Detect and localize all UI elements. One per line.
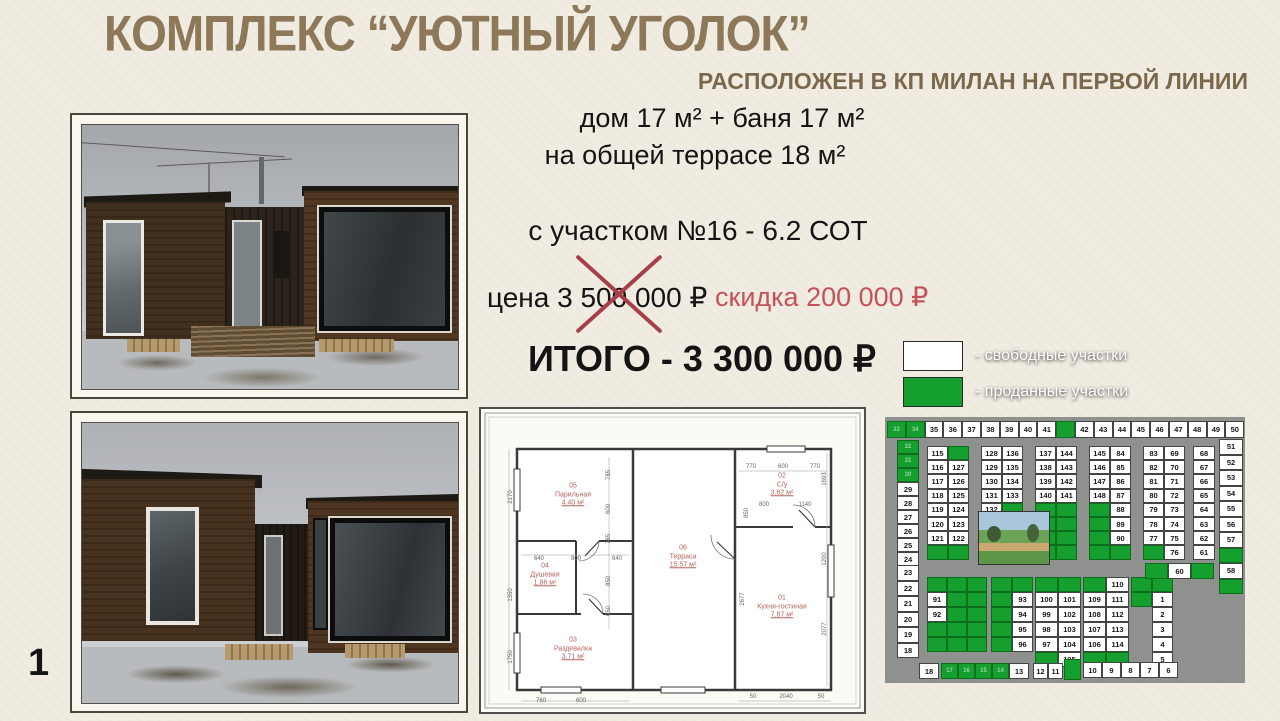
plot-cell: 8 xyxy=(1121,662,1140,678)
dimension-label: 1200 xyxy=(822,552,828,565)
plot-cell: 1 xyxy=(1152,592,1173,607)
plot-cell: 54 xyxy=(1219,486,1243,502)
left-cabin-window xyxy=(146,507,199,625)
plot-cell: 117 xyxy=(927,474,948,488)
plot-cell: 47 xyxy=(1169,421,1188,438)
plot-cell: 121 xyxy=(927,531,948,545)
plot-cell: 30 xyxy=(897,468,919,482)
plot-cell xyxy=(947,607,967,622)
site-map-plots: 3334353637383940414243444546474849503231… xyxy=(883,333,1262,709)
plot-cell xyxy=(1012,577,1033,592)
glass-door xyxy=(232,220,262,336)
dimension-label: 770 xyxy=(810,464,820,470)
dimension-label: 640 xyxy=(612,556,622,562)
plot-cell: 51 xyxy=(1219,439,1243,455)
pallet xyxy=(345,644,405,658)
dimension-label: 600 xyxy=(606,504,612,514)
plot-cell: 70 xyxy=(1164,460,1185,474)
plot-cell: 52 xyxy=(1219,455,1243,471)
plot-cell: 25 xyxy=(897,538,919,552)
plot-cell xyxy=(1089,545,1110,559)
plot-cell xyxy=(1131,607,1152,622)
plot-cell xyxy=(1056,503,1077,517)
plot-cell xyxy=(967,592,987,607)
plot-cell: 57 xyxy=(1219,532,1243,548)
plot-cell xyxy=(1191,563,1214,579)
plot-cell: 135 xyxy=(1002,460,1023,474)
plot-block: 13 xyxy=(1009,663,1029,679)
plot-cell xyxy=(1131,592,1152,607)
plot-cell: 56 xyxy=(1219,517,1243,533)
plot-cell xyxy=(1131,577,1152,592)
plot-block: 12345 xyxy=(1131,577,1173,667)
plot-cell: 10 xyxy=(1083,662,1102,678)
dimension-label: 800 xyxy=(571,556,581,562)
room-label-04: 04Душевая1.86 м² xyxy=(530,562,559,588)
plot-cell: 45 xyxy=(1131,421,1150,438)
plot-cell: 53 xyxy=(1219,470,1243,486)
dimension-label: 785 xyxy=(606,470,612,480)
plot-cell xyxy=(991,622,1012,637)
plot-cell: 46 xyxy=(1150,421,1169,438)
plot-cell: 44 xyxy=(1113,421,1132,438)
dimension-label: 785 xyxy=(606,534,612,544)
plot-cell: 111 xyxy=(1106,592,1129,607)
plot-cell: 72 xyxy=(1164,489,1185,503)
plot-cell xyxy=(1145,563,1168,579)
plot-block: 323130292827262524 xyxy=(897,440,919,566)
plot-cell xyxy=(927,637,947,652)
plot-cell xyxy=(927,622,947,637)
plot-cell: 76 xyxy=(1164,545,1185,559)
plot-cell: 37 xyxy=(962,421,981,438)
room-label-05: 05Парильная4.40 м² xyxy=(555,482,591,508)
plot-cell: 90 xyxy=(1110,531,1131,545)
plot-cell: 109 xyxy=(1083,592,1106,607)
photo-1-image xyxy=(81,124,459,390)
total-price: ИТОГО - 3 300 000 ₽ xyxy=(528,338,876,380)
plot-cell: 138 xyxy=(1035,460,1056,474)
plot-cell: 108 xyxy=(1083,607,1106,622)
plot-cell: 88 xyxy=(1110,503,1131,517)
plot-cell: 100 xyxy=(1035,592,1058,607)
plot-cell: 74 xyxy=(1164,517,1185,531)
plot-cell: 35 xyxy=(925,421,944,438)
plot-cell xyxy=(967,577,987,592)
plot-cell xyxy=(1131,622,1152,637)
plot-cell xyxy=(1143,545,1164,559)
plot-cell: 71 xyxy=(1164,474,1185,488)
plot-cell: 82 xyxy=(1143,460,1164,474)
location-subtitle: РАСПОЛОЖЕН В КП МИЛАН НА ПЕРВОЙ ЛИНИИ xyxy=(698,68,1248,95)
plot-block: 232221201918 xyxy=(897,565,919,658)
dimension-label: 1693 xyxy=(822,472,828,485)
room-label-01: 01Кухня-гостиная7.87 м² xyxy=(757,594,807,620)
plot-cell xyxy=(927,577,947,592)
plot-cell: 86 xyxy=(1110,474,1131,488)
plot-cell xyxy=(1089,503,1110,517)
pallet xyxy=(319,339,394,352)
plot-cell xyxy=(947,622,967,637)
spec-line-house: дом 17 м² + баня 17 м² xyxy=(502,103,942,134)
plot-cell: 93 xyxy=(1012,592,1033,607)
plot-cell: 96 xyxy=(1012,637,1033,652)
plot-cell: 139 xyxy=(1035,474,1056,488)
plot-cell: 119 xyxy=(927,503,948,517)
left-cabin-window xyxy=(103,220,144,336)
plot-cell: 48 xyxy=(1188,421,1207,438)
plot-cell: 110 xyxy=(1106,577,1129,592)
plot-cell: 104 xyxy=(1058,637,1081,652)
plot-block: 18 xyxy=(919,663,939,679)
plot-cell: 97 xyxy=(1035,637,1058,652)
room-label-03: 03Раздевалка3.71 м² xyxy=(554,636,592,662)
plot-cell: 131 xyxy=(981,489,1002,503)
floor-plan-labels: 05Парильная4.40 м²04Душевая1.86 м²03Разд… xyxy=(481,409,864,712)
plot-cell: 141 xyxy=(1056,489,1077,503)
plot-cell: 145 xyxy=(1089,446,1110,460)
plot-cell: 23 xyxy=(897,565,919,581)
plot-cell: 22 xyxy=(897,581,919,597)
plot-cell: 124 xyxy=(948,503,969,517)
plot-cell: 32 xyxy=(897,440,919,454)
plot-cell: 41 xyxy=(1037,421,1056,438)
plot-cell xyxy=(1058,577,1081,592)
dimension-label: 2040 xyxy=(779,694,792,700)
right-cabin-big-window xyxy=(319,207,451,331)
plot-cell: 69 xyxy=(1164,446,1185,460)
plot-cell xyxy=(991,607,1012,622)
plot-cell xyxy=(1056,531,1077,545)
slide: КОМПЛЕКС “УЮТНЫЙ УГОЛОК” РАСПОЛОЖЕН В КП… xyxy=(0,0,1280,721)
dimension-label: 1140 xyxy=(799,502,812,508)
plot-cell xyxy=(1056,421,1075,438)
plot-cell: 18 xyxy=(919,663,939,679)
photo-2-image xyxy=(81,422,459,704)
plot-cell: 2 xyxy=(1152,607,1173,622)
room-label-06: 06Терраса15.57 м² xyxy=(670,544,697,570)
strikethrough-cross-icon xyxy=(576,252,662,336)
plot-cell: 13 xyxy=(1009,663,1029,679)
plot-cell xyxy=(967,637,987,652)
plot-cell: 38 xyxy=(981,421,1000,438)
plot-cell: 83 xyxy=(1143,446,1164,460)
plot-cell xyxy=(1219,548,1243,564)
discount: скидка 200 000 ₽ xyxy=(715,282,928,313)
small-window xyxy=(274,231,289,279)
dimension-label: 770 xyxy=(746,464,756,470)
plot-cell xyxy=(1219,579,1243,595)
dimension-label: 600 xyxy=(576,698,586,704)
plot-cell: 43 xyxy=(1094,421,1113,438)
wood-deck xyxy=(191,326,315,358)
plot-cell: 95 xyxy=(1012,622,1033,637)
room-label-02: 02С/у3.62 м² xyxy=(771,472,794,498)
plot-cell: 68 xyxy=(1193,446,1215,460)
plot-cell: 29 xyxy=(897,482,919,496)
plot-cell xyxy=(967,607,987,622)
dimension-label: 600 xyxy=(778,464,788,470)
plot-cell: 118 xyxy=(927,489,948,503)
plot-cell: 26 xyxy=(897,524,919,538)
plot-cell: 50 xyxy=(1225,421,1244,438)
plot-block: 60 xyxy=(1145,563,1214,579)
plot-cell: 21 xyxy=(897,596,919,612)
plot-cell: 129 xyxy=(981,460,1002,474)
plot-cell: 89 xyxy=(1110,517,1131,531)
page-title: КОМПЛЕКС “УЮТНЫЙ УГОЛОК” xyxy=(104,4,810,62)
plot-cell: 63 xyxy=(1193,517,1215,531)
plot-cell: 6 xyxy=(1159,662,1178,678)
plot-cell xyxy=(1064,659,1081,680)
village-render-inset xyxy=(978,511,1050,565)
plot-cell: 60 xyxy=(1168,563,1191,579)
plot-cell: 77 xyxy=(1143,531,1164,545)
plot-block: 9192 xyxy=(927,577,987,652)
plot-cell: 9 xyxy=(1102,662,1121,678)
site-map: - свободные участки - проданные участки … xyxy=(883,333,1262,709)
plot-cell xyxy=(1089,531,1110,545)
plot-cell xyxy=(947,637,967,652)
plot-cell: 11 xyxy=(1048,663,1063,679)
plot-cell: 19 xyxy=(897,627,919,643)
plot-cell xyxy=(947,577,967,592)
dimension-label: 2677 xyxy=(740,592,746,605)
plot-cell: 85 xyxy=(1110,460,1131,474)
page-number: 1 xyxy=(28,642,49,685)
pallet xyxy=(127,339,180,352)
plot-cell: 49 xyxy=(1207,421,1226,438)
plot-cell: 42 xyxy=(1075,421,1094,438)
plot-cell: 12 xyxy=(1033,663,1048,679)
pallet xyxy=(225,644,293,659)
plot-cell: 78 xyxy=(1143,517,1164,531)
plot-cell: 147 xyxy=(1089,474,1110,488)
floor-plan: 05Парильная4.40 м²04Душевая1.86 м²03Разд… xyxy=(479,407,866,714)
plot-block: 6867666564636261 xyxy=(1193,446,1215,560)
plot-cell: 103 xyxy=(1058,622,1081,637)
plot-cell: 106 xyxy=(1083,637,1106,652)
plot-cell: 126 xyxy=(948,474,969,488)
plot-cell xyxy=(1089,517,1110,531)
plot-cell xyxy=(1131,637,1152,652)
plot-cell: 55 xyxy=(1219,501,1243,517)
plot-info: с участком №16 - 6.2 СОТ xyxy=(478,215,918,247)
dimension-label: 650 xyxy=(606,606,612,616)
photo-cabins-front xyxy=(70,113,468,399)
dimension-label: 1750 xyxy=(508,650,514,663)
plot-cell: 33 xyxy=(887,421,906,438)
plot-cell: 144 xyxy=(1056,446,1077,460)
plot-cell xyxy=(1110,545,1131,559)
plot-cell: 7 xyxy=(1140,662,1159,678)
plot-cell: 27 xyxy=(897,510,919,524)
plot-cell xyxy=(947,592,967,607)
plot-cell: 34 xyxy=(906,421,925,438)
dimension-label: 50 xyxy=(818,694,825,700)
plot-cell xyxy=(948,545,969,559)
plot-cell: 67 xyxy=(1193,460,1215,474)
plot-cell: 3 xyxy=(1152,622,1173,637)
plot-cell: 40 xyxy=(1019,421,1038,438)
chimney-pipe xyxy=(259,157,264,205)
plot-block: 5152535455565758 xyxy=(1219,439,1243,594)
plot-cell: 79 xyxy=(1143,503,1164,517)
plot-cell xyxy=(991,577,1012,592)
plot-cell: 101 xyxy=(1058,592,1081,607)
right-cabin-big-window xyxy=(330,518,450,641)
plot-cell xyxy=(1035,577,1058,592)
plot-cell: 143 xyxy=(1056,460,1077,474)
plot-cell: 62 xyxy=(1193,531,1215,545)
plot-block: 109876 xyxy=(1083,662,1178,678)
plot-cell xyxy=(1152,577,1173,592)
plot-cell: 65 xyxy=(1193,489,1215,503)
plot-cell: 98 xyxy=(1035,622,1058,637)
dimension-label: 850 xyxy=(744,508,750,518)
plot-cell: 87 xyxy=(1110,489,1131,503)
plot-block: 14584146851478614887888990 xyxy=(1089,446,1131,560)
plot-cell: 130 xyxy=(981,474,1002,488)
plot-cell xyxy=(991,637,1012,652)
plot-cell: 91 xyxy=(927,592,947,607)
spec-line-terrace: на общей террасе 18 м² xyxy=(475,140,915,171)
plot-cell: 16 xyxy=(958,663,975,679)
plot-cell xyxy=(1083,577,1106,592)
plot-cell: 120 xyxy=(927,517,948,531)
dimension-label: 2170 xyxy=(508,490,514,503)
plot-cell: 148 xyxy=(1089,489,1110,503)
plot-cell: 133 xyxy=(1002,489,1023,503)
plot-block: 1211 xyxy=(1033,663,1063,679)
plot-cell xyxy=(967,622,987,637)
plot-cell xyxy=(1056,517,1077,531)
dimension-label: 640 xyxy=(534,556,544,562)
plot-cell xyxy=(948,446,969,460)
plot-cell: 20 xyxy=(897,612,919,628)
plot-cell: 112 xyxy=(1106,607,1129,622)
plot-cell: 140 xyxy=(1035,489,1056,503)
plot-block xyxy=(1064,659,1081,680)
plot-cell: 137 xyxy=(1035,446,1056,460)
plot-block: 115116127117126118125119124120123121122 xyxy=(927,446,969,560)
plot-cell: 102 xyxy=(1058,607,1081,622)
plot-block: 110109111108112107113106114 xyxy=(1083,577,1129,667)
plot-cell: 107 xyxy=(1083,622,1106,637)
plot-block: 93949596 xyxy=(991,577,1033,652)
plot-cell: 134 xyxy=(1002,474,1023,488)
plot-cell: 136 xyxy=(1002,446,1023,460)
dimension-label: 800 xyxy=(759,502,769,508)
plot-cell: 146 xyxy=(1089,460,1110,474)
plot-cell: 17 xyxy=(941,663,958,679)
dimension-label: 2077 xyxy=(822,622,828,635)
plot-cell: 94 xyxy=(1012,607,1033,622)
plot-cell: 73 xyxy=(1164,503,1185,517)
plot-cell: 115 xyxy=(927,446,948,460)
plot-cell: 125 xyxy=(948,489,969,503)
plot-cell: 80 xyxy=(1143,489,1164,503)
plot-cell: 28 xyxy=(897,496,919,510)
plot-cell: 92 xyxy=(927,607,947,622)
plot-cell: 123 xyxy=(948,517,969,531)
plot-cell: 114 xyxy=(1106,637,1129,652)
plot-cell: 66 xyxy=(1193,474,1215,488)
dimension-label: 1350 xyxy=(508,588,514,601)
plot-cell: 64 xyxy=(1193,503,1215,517)
plot-cell xyxy=(991,592,1012,607)
dimension-label: 760 xyxy=(536,698,546,704)
plot-cell: 24 xyxy=(897,552,919,566)
plot-cell: 18 xyxy=(897,643,919,659)
dimension-label: 850 xyxy=(606,576,612,586)
plot-cell: 4 xyxy=(1152,637,1173,652)
plot-cell: 58 xyxy=(1219,563,1243,579)
plot-cell: 61 xyxy=(1193,545,1215,559)
plot-block: 836982708171807279737874777576 xyxy=(1143,446,1185,560)
plot-cell: 127 xyxy=(948,460,969,474)
plot-cell: 116 xyxy=(927,460,948,474)
dimension-label: 50 xyxy=(750,694,757,700)
plot-cell xyxy=(927,545,948,559)
plot-cell: 84 xyxy=(1110,446,1131,460)
plot-cell xyxy=(1056,545,1077,559)
plot-cell: 14 xyxy=(992,663,1009,679)
plot-block: 100101991029810397104105 xyxy=(1035,577,1081,667)
plot-cell: 122 xyxy=(948,531,969,545)
plot-cell: 128 xyxy=(981,446,1002,460)
plot-cell: 113 xyxy=(1106,622,1129,637)
plot-cell: 15 xyxy=(975,663,992,679)
corner-window xyxy=(313,518,328,630)
glass-door xyxy=(264,535,283,636)
plot-block: 17161514 xyxy=(941,663,1009,679)
plot-cell: 99 xyxy=(1035,607,1058,622)
plot-cell: 142 xyxy=(1056,474,1077,488)
plot-cell: 36 xyxy=(943,421,962,438)
plot-cell: 31 xyxy=(897,454,919,468)
plot-block: 333435363738394041424344454647484950 xyxy=(887,421,1244,438)
plot-cell: 81 xyxy=(1143,474,1164,488)
plot-cell: 75 xyxy=(1164,531,1185,545)
photo-cabins-side xyxy=(70,411,468,713)
plot-cell: 39 xyxy=(1000,421,1019,438)
